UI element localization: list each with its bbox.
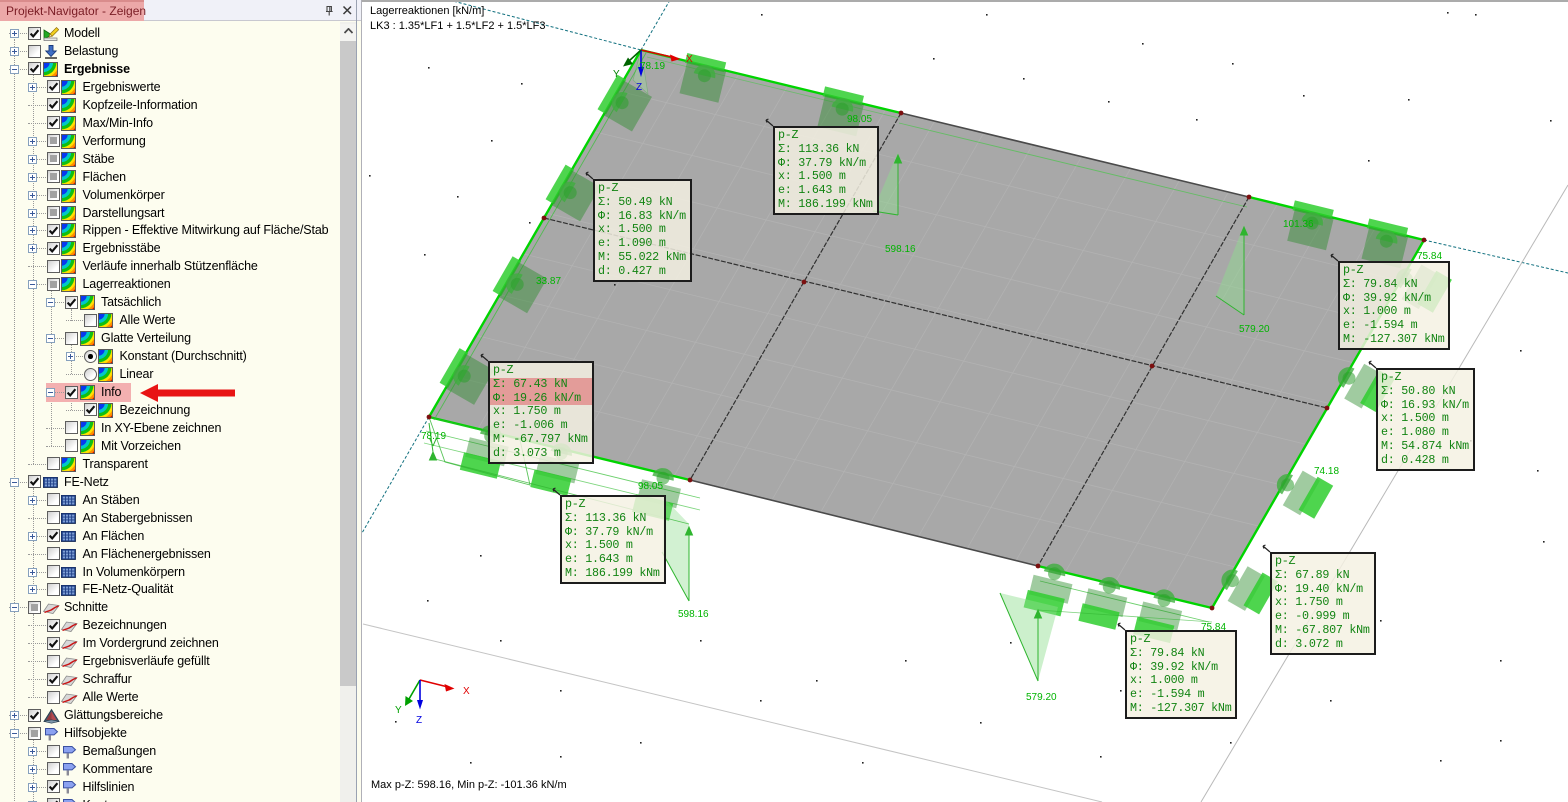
svg-text:74.18: 74.18: [1314, 466, 1339, 477]
svg-text:598.16: 598.16: [678, 609, 709, 620]
svg-text:579.20: 579.20: [1239, 324, 1270, 335]
svg-text:98.05: 98.05: [847, 114, 872, 125]
svg-text:98.05: 98.05: [638, 481, 663, 492]
svg-text:78.19: 78.19: [421, 431, 446, 442]
svg-text:Y: Y: [613, 69, 620, 80]
svg-text:33.87: 33.87: [536, 276, 561, 287]
svg-text:598.16: 598.16: [885, 244, 916, 255]
svg-text:579.20: 579.20: [1026, 692, 1057, 703]
svg-text:X: X: [686, 54, 693, 65]
svg-text:Z: Z: [416, 715, 422, 726]
svg-text:78.19: 78.19: [640, 61, 665, 72]
svg-text:X: X: [463, 686, 470, 697]
svg-text:Z: Z: [636, 82, 642, 93]
svg-text:Y: Y: [395, 705, 402, 716]
svg-text:101.36: 101.36: [1283, 219, 1314, 230]
